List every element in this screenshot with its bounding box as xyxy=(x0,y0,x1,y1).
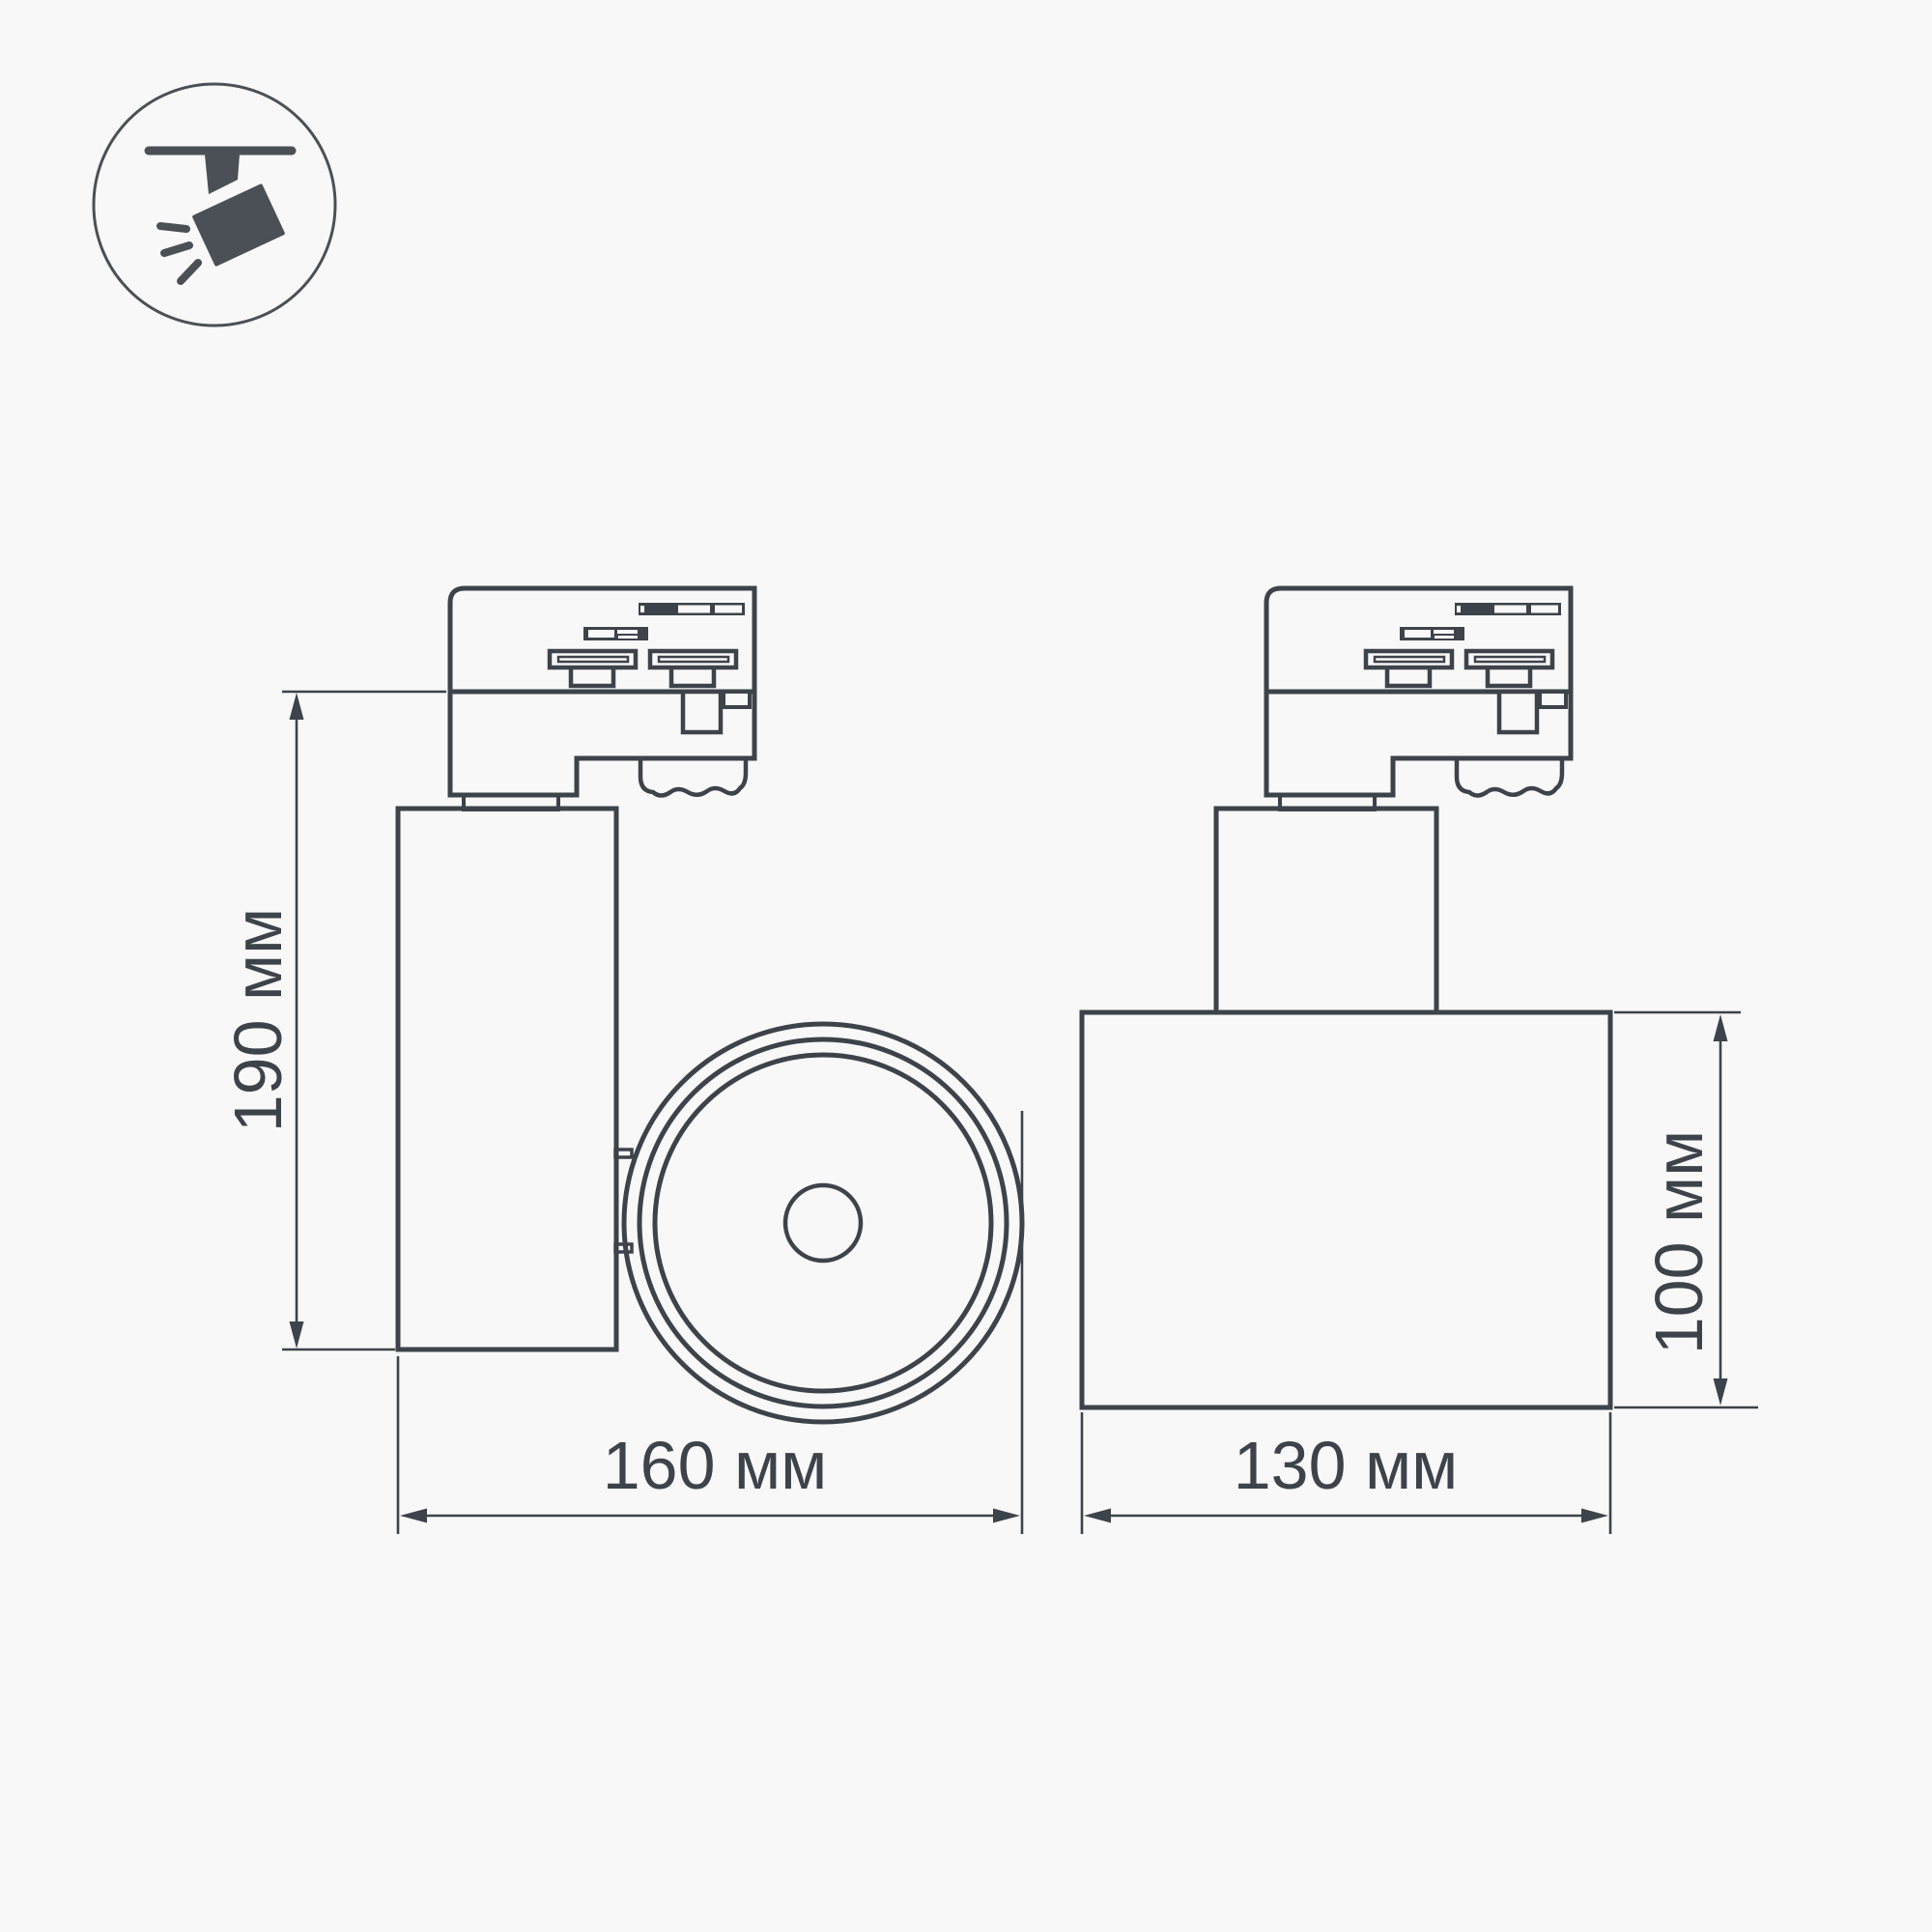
dimension-width-160: 160 мм xyxy=(398,1111,1022,1534)
dimension-width-130: 130 мм xyxy=(1082,1412,1610,1534)
lamp-barrel xyxy=(398,809,616,1350)
dimension-label-130: 130 мм xyxy=(1234,1428,1459,1503)
icon-mount-stem xyxy=(205,155,240,194)
dimension-height-100: 100 мм xyxy=(1614,1012,1758,1407)
icon-light-rays xyxy=(160,226,198,281)
mounting-neck xyxy=(1216,809,1436,1012)
lens-front xyxy=(624,1024,1022,1422)
dimension-label-160: 160 мм xyxy=(603,1428,828,1503)
track-spotlight-icon xyxy=(94,84,335,326)
icon-lamp-body xyxy=(191,184,285,267)
dimension-height-190: 190 мм xyxy=(220,692,446,1350)
technical-drawing: 190 мм 160 мм 130 мм 100 мм xyxy=(0,0,1932,1932)
lamp-housing-front xyxy=(1082,1012,1610,1407)
dimension-label-190: 190 мм xyxy=(220,908,296,1133)
front-view-drawing xyxy=(1082,588,1610,1407)
track-adapter xyxy=(1266,588,1571,810)
icon-circle-border xyxy=(94,84,335,326)
track-adapter xyxy=(450,588,754,810)
led-center-dot xyxy=(785,1185,861,1261)
dimension-label-100: 100 мм xyxy=(1641,1130,1717,1355)
diagram-page: 190 мм 160 мм 130 мм 100 мм xyxy=(0,0,1932,1932)
side-view-drawing xyxy=(398,588,1022,1422)
